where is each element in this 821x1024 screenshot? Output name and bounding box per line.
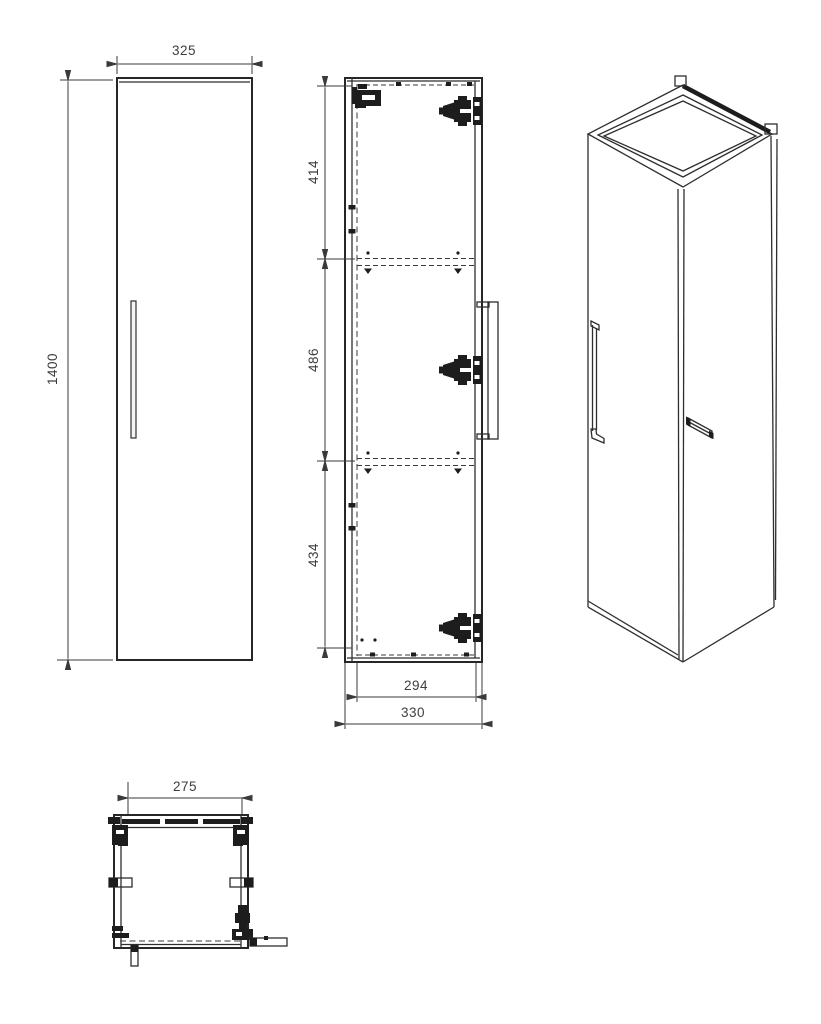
perspective-side-handle	[686, 417, 714, 440]
cabinet-technical-drawing: 325 1400	[0, 0, 821, 1024]
dimension-plan-inner-width: 275	[128, 779, 242, 815]
top-back-edge	[683, 86, 770, 132]
dimension-side-inner-depth: 294	[357, 663, 476, 702]
front-corner-edge-door	[678, 189, 679, 659]
front-width-label: 325	[172, 43, 196, 58]
front-cabinet-outline	[117, 78, 252, 660]
top-face-outer-rim	[588, 85, 772, 187]
top-face-inner-rim	[598, 95, 762, 177]
front-height-label: 1400	[45, 353, 60, 385]
front-corner-edge-side	[683, 189, 684, 662]
side-top-section-label: 414	[306, 160, 321, 184]
plan-hinge	[232, 905, 287, 946]
side-bottom-section-label: 434	[306, 543, 321, 567]
right-vertical-edge-inner	[776, 139, 778, 600]
dimension-front-height: 1400	[45, 80, 113, 660]
bottom-right-edge	[683, 607, 774, 662]
plan-cabinet-outline	[114, 815, 248, 948]
dimension-front-width: 325	[117, 43, 252, 74]
door-bottom-edge	[588, 601, 678, 655]
front-door-handle	[131, 301, 136, 438]
dimension-side-outer-depth: 330	[345, 663, 482, 729]
side-section-view: 414 486 434 294 330	[306, 78, 498, 729]
bottom-left-edge	[588, 607, 683, 662]
plan-inner-width-label: 275	[173, 779, 197, 794]
right-vertical-edge	[771, 136, 774, 607]
plan-view: 275	[108, 779, 287, 966]
perspective-door-handle	[591, 321, 604, 443]
side-outer-depth-label: 330	[401, 705, 425, 720]
side-middle-section-label: 486	[306, 348, 321, 372]
technical-drawing-canvas: 325 1400	[0, 0, 821, 1024]
front-view: 325 1400	[45, 43, 252, 660]
side-inner-depth-label: 294	[404, 678, 428, 693]
perspective-view	[588, 76, 777, 662]
